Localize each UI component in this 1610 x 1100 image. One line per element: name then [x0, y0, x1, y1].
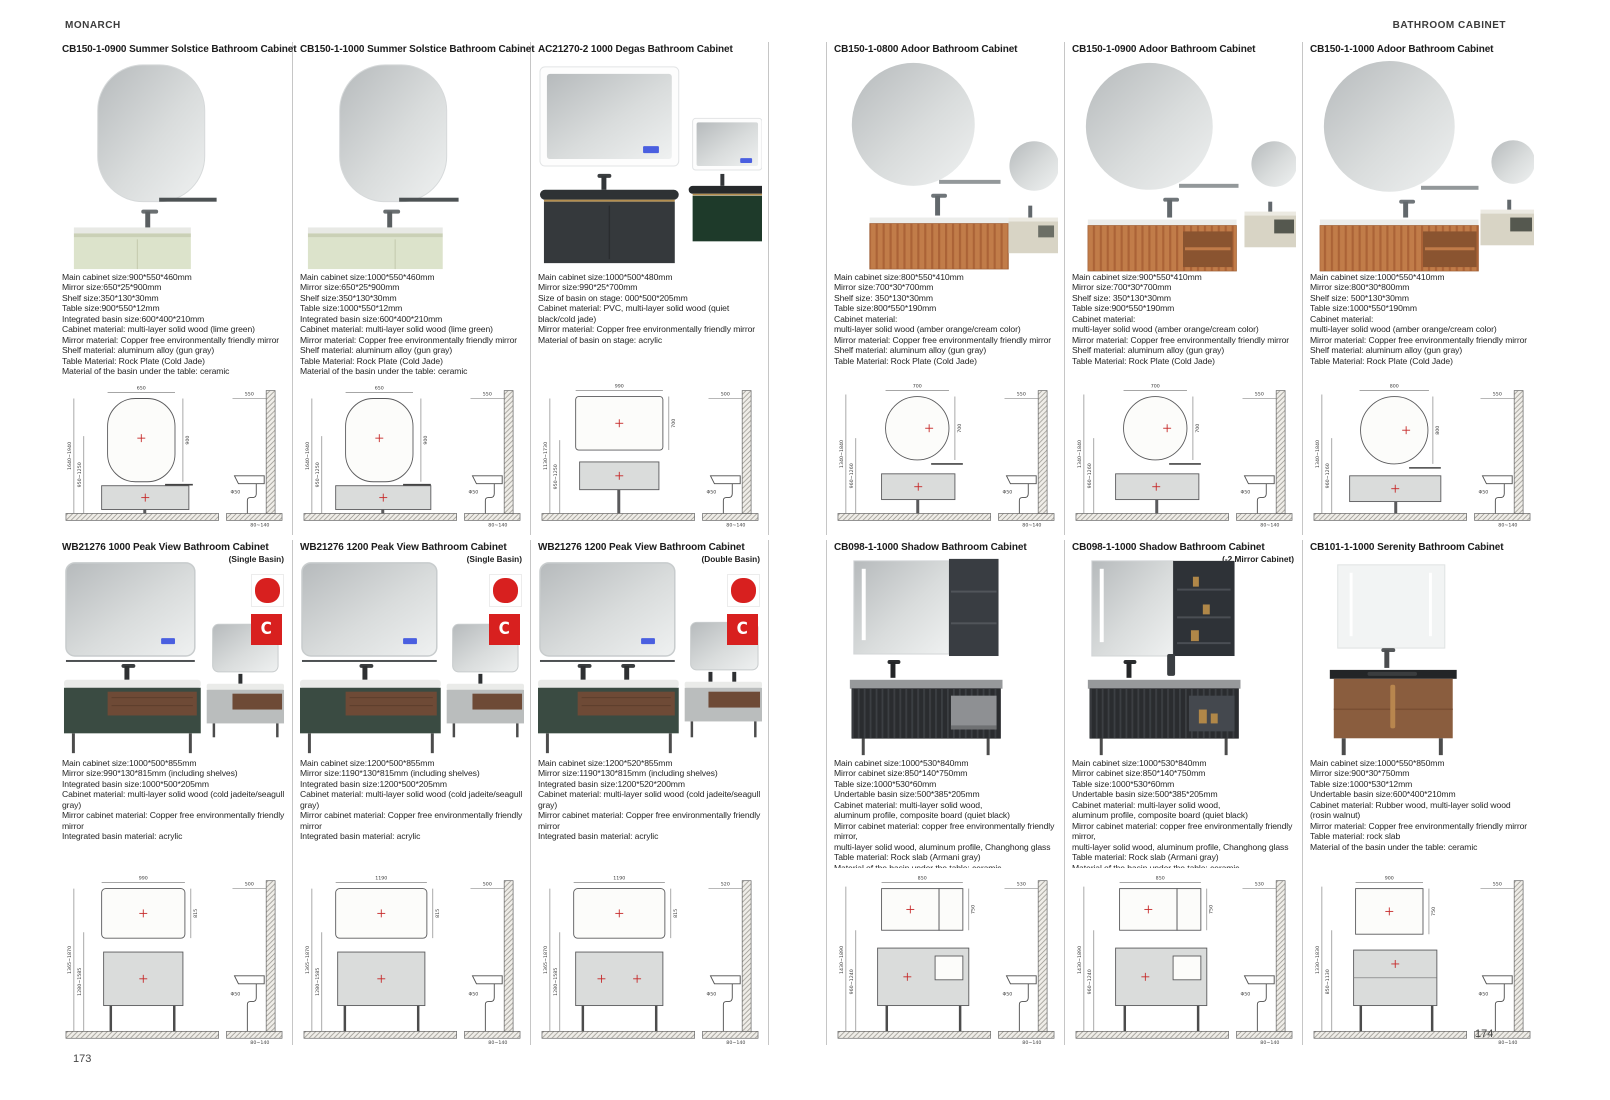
mirror: [66, 563, 195, 656]
tech-drawing: 1365~1870 1280~1585 1190 815 500 Φ50 80~…: [300, 868, 524, 1046]
tech-drawing: 1340~1840 960~1260 700 700 550 Φ50 80~14…: [1072, 380, 1296, 528]
svg-text:700: 700: [913, 384, 922, 390]
product-specs: Main cabinet size:1000*500*480mm Mirror …: [538, 272, 761, 380]
cert-badges: C: [489, 574, 522, 645]
svg-text:990: 990: [139, 876, 148, 882]
svg-text:650: 650: [375, 386, 384, 392]
page-gutter: [769, 540, 826, 1045]
svg-text:700: 700: [1195, 424, 1201, 433]
product-card-cb150-1-1000-adoor: CB150-1-1000 Adoor Bathroom Cabinet Main…: [1302, 42, 1540, 535]
svg-text:Φ50: Φ50: [230, 992, 240, 998]
svg-text:550: 550: [1493, 882, 1502, 888]
product-title: WB21276 1200 Peak View Bathroom Cabinet: [300, 540, 523, 555]
svg-text:850: 850: [918, 876, 927, 882]
product-specs: Main cabinet size:900*550*460mm Mirror s…: [62, 272, 285, 380]
svg-text:1365~1870: 1365~1870: [543, 946, 549, 974]
svg-text:Φ50: Φ50: [230, 490, 240, 496]
svg-text:960~1260: 960~1260: [1087, 463, 1093, 488]
product-specs: Main cabinet size:1000*550*460mm Mirror …: [300, 272, 523, 380]
svg-text:80~140: 80~140: [726, 522, 745, 528]
product-card-cb098-1-1000-shadow: CB098-1-1000 Shadow Bathroom Cabinet Mai…: [826, 540, 1064, 1045]
product-photo: [1072, 558, 1295, 758]
product-specs: Main cabinet size:1000*550*850mm Mirror …: [1310, 758, 1533, 868]
svg-text:550: 550: [1255, 392, 1264, 398]
product-card-ac21270-2-1000-degas: AC21270-2 1000 Degas Bathroom Cabinet: [531, 42, 769, 535]
tech-drawing: 1640~1940 950~1250 650 900 550 Φ50 80~14…: [62, 380, 286, 528]
round-mirror: [1324, 61, 1455, 192]
svg-text:1330~1830: 1330~1830: [1315, 946, 1321, 974]
tech-drawing: 1430~1890 960~1240 850 750 530 Φ50 80~14…: [1072, 868, 1296, 1046]
mirror-side-cabinet: [949, 559, 999, 656]
svg-text:80~140: 80~140: [250, 522, 269, 528]
svg-text:900: 900: [185, 436, 191, 445]
svg-text:650: 650: [137, 386, 146, 392]
svg-text:1365~1870: 1365~1870: [305, 946, 311, 974]
tech-drawing: 1340~1840 960~1260 700 700 550 Φ50 80~14…: [834, 380, 1058, 528]
product-card-cb098-1-1000-shadow-2-mirror: CB098-1-1000 Shadow Bathroom Cabinet (-2…: [1064, 540, 1302, 1045]
product-photo: [1310, 60, 1533, 272]
svg-text:1365~1870: 1365~1870: [67, 946, 73, 974]
photo-illustration: [1310, 558, 1534, 758]
page-number-left: 173: [73, 1053, 91, 1065]
product-title: AC21270-2 1000 Degas Bathroom Cabinet: [538, 42, 761, 57]
product-specs: Main cabinet size:1000*550*410mm Mirror …: [1310, 272, 1533, 380]
svg-text:530: 530: [1255, 882, 1264, 888]
svg-text:815: 815: [673, 909, 679, 918]
svg-text:80~140: 80~140: [488, 522, 507, 528]
svg-text:960~1240: 960~1240: [849, 969, 855, 994]
photo-illustration: [1072, 558, 1296, 758]
svg-text:520: 520: [721, 882, 730, 888]
svg-text:80~140: 80~140: [1260, 522, 1279, 528]
product-specs: Main cabinet size:900*550*410mm Mirror s…: [1072, 272, 1295, 380]
product-specs: Main cabinet size:1200*500*855mm Mirror …: [300, 758, 523, 868]
led-display: [641, 638, 655, 644]
svg-text:500: 500: [483, 882, 492, 888]
red-seal-icon: [727, 574, 760, 607]
product-title: CB098-1-1000 Shadow Bathroom Cabinet: [1072, 540, 1295, 555]
photo-illustration: [300, 60, 524, 272]
red-seal-icon: [251, 574, 284, 607]
svg-text:700: 700: [671, 419, 677, 428]
svg-text:700: 700: [1151, 384, 1160, 390]
svg-text:850~1130: 850~1130: [1325, 969, 1331, 994]
svg-text:80~140: 80~140: [1498, 1040, 1517, 1046]
wood-drawer: [346, 692, 437, 716]
photo-illustration: [834, 558, 1058, 758]
photo-illustration: [834, 60, 1058, 272]
led-display: [161, 638, 175, 644]
svg-text:750: 750: [1431, 907, 1437, 916]
svg-text:950~1250: 950~1250: [77, 462, 83, 487]
cert-badges: C: [251, 574, 284, 645]
svg-text:1340~1840: 1340~1840: [839, 440, 845, 468]
mirror: [1092, 561, 1173, 656]
wood-drawer: [578, 692, 675, 716]
product-photo: [1072, 60, 1295, 272]
product-specs: Main cabinet size:1000*500*855mm Mirror …: [62, 758, 285, 868]
svg-text:Φ50: Φ50: [1240, 992, 1250, 998]
product-title: CB150-1-0900 Adoor Bathroom Cabinet: [1072, 42, 1295, 57]
svg-text:815: 815: [193, 909, 199, 918]
cabinet: [870, 223, 1009, 269]
svg-text:1340~1840: 1340~1840: [1077, 440, 1083, 468]
mini-round-mirror: [1251, 141, 1296, 187]
tech-drawing: 1430~1890 960~1240 850 750 530 Φ50 80~14…: [834, 868, 1058, 1046]
product-card-cb101-1-1000-serenity: CB101-1-1000 Serenity Bathroom Cabinet M…: [1302, 540, 1540, 1045]
svg-text:550: 550: [1493, 392, 1502, 398]
svg-text:800: 800: [1435, 426, 1441, 435]
svg-text:1280~1585: 1280~1585: [315, 968, 321, 996]
bottle: [1167, 654, 1175, 676]
product-card-cb150-1-0900-summer-solstice: CB150-1-0900 Summer Solstice Bathroom Ca…: [55, 42, 293, 535]
svg-text:550: 550: [245, 392, 254, 398]
door-cert-icon: C: [727, 614, 758, 645]
led-strip: [1429, 573, 1432, 636]
svg-text:500: 500: [721, 392, 730, 398]
page-number-right: 174: [1475, 1028, 1493, 1040]
product-title: CB150-1-0800 Adoor Bathroom Cabinet: [834, 42, 1057, 57]
photo-illustration: [1310, 60, 1534, 272]
brand-header: MONARCH: [65, 20, 121, 31]
svg-text:1430~1890: 1430~1890: [1077, 946, 1083, 974]
product-specs: Main cabinet size:1000*530*840mm Mirror …: [834, 758, 1057, 868]
svg-text:815: 815: [435, 909, 441, 918]
product-title: CB101-1-1000 Serenity Bathroom Cabinet: [1310, 540, 1533, 555]
product-title: CB150-1-0900 Summer Solstice Bathroom Ca…: [62, 42, 285, 57]
svg-text:1640~1940: 1640~1940: [67, 442, 73, 470]
svg-text:1340~1840: 1340~1840: [1315, 440, 1321, 468]
mini-round-mirror: [1491, 140, 1534, 184]
product-card-wb21276-1200-peak-view-single: WB21276 1200 Peak View Bathroom Cabinet …: [293, 540, 531, 1045]
led-strip: [1100, 569, 1104, 642]
svg-text:80~140: 80~140: [488, 1040, 507, 1046]
svg-text:80~140: 80~140: [1022, 522, 1041, 528]
svg-text:Φ50: Φ50: [468, 992, 478, 998]
product-title: CB150-1-1000 Adoor Bathroom Cabinet: [1310, 42, 1533, 57]
photo-illustration: [62, 60, 286, 272]
svg-text:900: 900: [423, 436, 429, 445]
tech-drawing: 1365~1870 1280~1585 990 815 500 Φ50 80~1…: [62, 868, 286, 1046]
product-card-cb150-1-0900-adoor: CB150-1-0900 Adoor Bathroom Cabinet Main…: [1064, 42, 1302, 535]
svg-text:Φ50: Φ50: [706, 992, 716, 998]
mini-round-mirror: [1009, 141, 1058, 191]
product-card-wb21276-1200-peak-view-double: WB21276 1200 Peak View Bathroom Cabinet …: [531, 540, 769, 1045]
svg-text:750: 750: [1209, 905, 1215, 914]
svg-text:1190: 1190: [613, 876, 625, 882]
cabinet: [308, 237, 443, 269]
svg-text:80~140: 80~140: [1260, 1040, 1279, 1046]
tech-drawing: 1130~1730 950~1250 990 700 500 Φ50 80~14…: [538, 380, 762, 528]
svg-text:Φ50: Φ50: [1240, 490, 1250, 496]
round-mirror: [1086, 63, 1213, 190]
svg-text:1640~1940: 1640~1940: [305, 442, 311, 470]
product-specs: Main cabinet size:1200*520*855mm Mirror …: [538, 758, 761, 868]
led-strip: [862, 569, 866, 640]
svg-text:960~1240: 960~1240: [1087, 969, 1093, 994]
svg-text:Φ50: Φ50: [468, 490, 478, 496]
catalog-row-top: CB150-1-0900 Summer Solstice Bathroom Ca…: [55, 42, 1540, 535]
product-card-wb21276-1000-peak-view: WB21276 1000 Peak View Bathroom Cabinet …: [55, 540, 293, 1045]
svg-text:530: 530: [1017, 882, 1026, 888]
svg-text:80~140: 80~140: [1022, 1040, 1041, 1046]
product-title: WB21276 1000 Peak View Bathroom Cabinet: [62, 540, 285, 555]
svg-text:1130~1730: 1130~1730: [543, 442, 549, 470]
door-cert-icon: C: [489, 614, 520, 645]
led-display: [643, 146, 659, 153]
product-title: WB21276 1200 Peak View Bathroom Cabinet: [538, 540, 761, 555]
svg-text:Φ50: Φ50: [1478, 490, 1488, 496]
product-specs: Main cabinet size:800*550*410mm Mirror s…: [834, 272, 1057, 380]
catalog-row-bottom: WB21276 1000 Peak View Bathroom Cabinet …: [55, 540, 1540, 1045]
door-cert-icon: C: [251, 614, 282, 645]
led-strip: [1350, 573, 1353, 636]
photo-illustration: [538, 60, 762, 272]
product-photo: [834, 558, 1057, 758]
tech-drawing: 1365~1870 1280~1585 1190 815 520 Φ50 80~…: [538, 868, 762, 1046]
mirror: [1338, 565, 1445, 648]
svg-text:850: 850: [1156, 876, 1165, 882]
product-card-cb150-1-1000-summer-solstice: CB150-1-1000 Summer Solstice Bathroom Ca…: [293, 42, 531, 535]
stone-top: [1088, 680, 1241, 689]
svg-text:550: 550: [483, 392, 492, 398]
svg-text:Φ50: Φ50: [1478, 992, 1488, 998]
product-card-cb150-1-0800-adoor: CB150-1-0800 Adoor Bathroom Cabinet Main…: [826, 42, 1064, 535]
mirror: [98, 65, 205, 202]
svg-text:Φ50: Φ50: [1002, 992, 1012, 998]
svg-text:1430~1890: 1430~1890: [839, 946, 845, 974]
product-photo: [300, 60, 523, 272]
svg-text:960~1260: 960~1260: [1325, 463, 1331, 488]
svg-text:990: 990: [615, 384, 624, 390]
product-photo: [834, 60, 1057, 272]
product-title: CB150-1-1000 Summer Solstice Bathroom Ca…: [300, 42, 523, 57]
category-header: BATHROOM CABINET: [1393, 20, 1506, 31]
svg-text:950~1250: 950~1250: [315, 462, 321, 487]
round-mirror: [852, 63, 975, 186]
svg-text:80~140: 80~140: [250, 1040, 269, 1046]
stone-top: [850, 680, 1003, 689]
tech-drawing: 1640~1940 950~1250 650 900 550 Φ50 80~14…: [300, 380, 524, 528]
cert-badges: C: [727, 574, 760, 645]
cabinet: [74, 237, 191, 269]
product-title: CB098-1-1000 Shadow Bathroom Cabinet: [834, 540, 1057, 555]
glass-cubby: [1189, 696, 1235, 732]
svg-text:950~1250: 950~1250: [553, 464, 559, 489]
svg-text:960~1260: 960~1260: [849, 463, 855, 488]
handle: [1390, 685, 1395, 729]
product-photo: [1310, 558, 1533, 758]
mini-cabinet: [693, 196, 762, 242]
svg-text:80~140: 80~140: [726, 1040, 745, 1046]
mirror: [340, 65, 447, 202]
photo-illustration: [1072, 60, 1296, 272]
svg-text:700: 700: [957, 424, 963, 433]
tech-drawing: 1330~1830 850~1130 900 750 550 Φ50 80~14…: [1310, 868, 1534, 1046]
product-photo: [538, 60, 761, 272]
svg-text:1280~1585: 1280~1585: [553, 968, 559, 996]
mirror: [854, 561, 949, 654]
red-seal-icon: [489, 574, 522, 607]
product-specs: Main cabinet size:1000*530*840mm Mirror …: [1072, 758, 1295, 868]
svg-text:1280~1585: 1280~1585: [77, 968, 83, 996]
svg-text:80~140: 80~140: [1498, 522, 1517, 528]
svg-text:500: 500: [245, 882, 254, 888]
led-display: [403, 638, 417, 644]
open-cubby: [951, 696, 997, 730]
product-photo: [62, 60, 285, 272]
svg-text:800: 800: [1390, 384, 1399, 390]
svg-text:900: 900: [1385, 876, 1394, 882]
svg-text:750: 750: [971, 905, 977, 914]
svg-text:1190: 1190: [375, 876, 387, 882]
wood-drawer: [108, 692, 197, 716]
svg-text:Φ50: Φ50: [706, 490, 716, 496]
tech-drawing: 1340~1840 960~1260 800 800 550 Φ50 80~14…: [1310, 380, 1534, 528]
page-gutter: [769, 42, 826, 535]
svg-text:550: 550: [1017, 392, 1026, 398]
svg-text:Φ50: Φ50: [1002, 490, 1012, 496]
